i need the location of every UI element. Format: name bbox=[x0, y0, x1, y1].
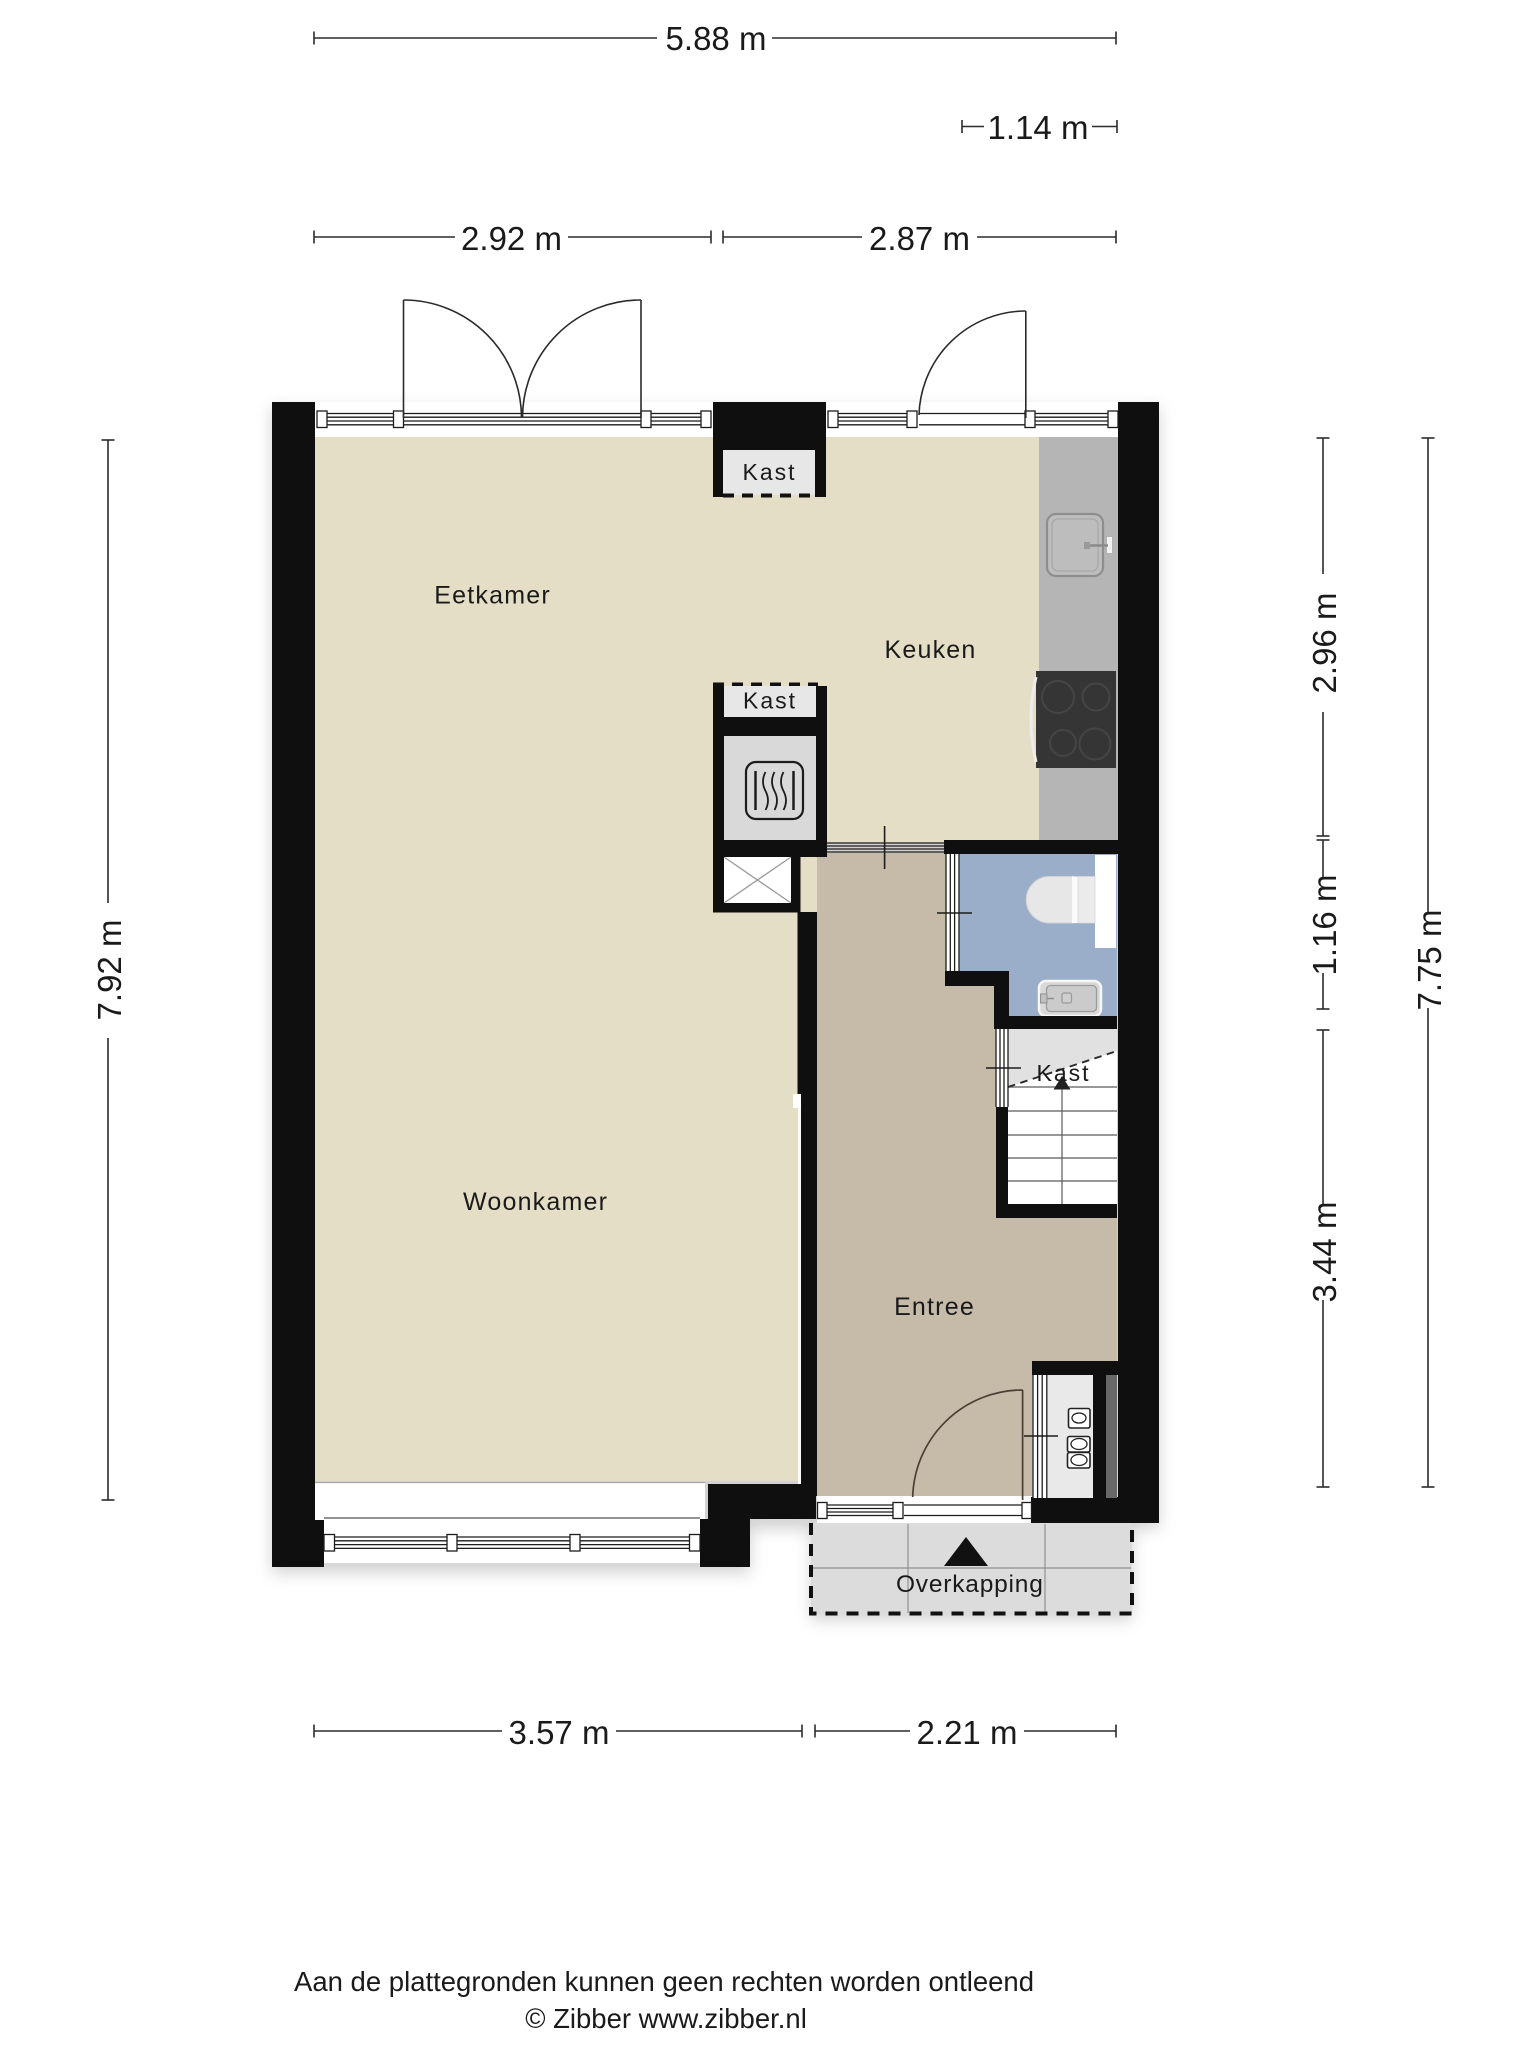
svg-text:Overkapping: Overkapping bbox=[896, 1571, 1044, 1598]
svg-text:3.57 m: 3.57 m bbox=[509, 1714, 610, 1751]
svg-text:Aan de plattegronden kunnen ge: Aan de plattegronden kunnen geen rechten… bbox=[294, 1966, 1034, 1997]
svg-text:5.88 m: 5.88 m bbox=[666, 20, 767, 57]
svg-text:Keuken: Keuken bbox=[885, 636, 977, 664]
svg-text:2.96 m: 2.96 m bbox=[1306, 593, 1343, 694]
svg-text:1.14 m: 1.14 m bbox=[988, 109, 1089, 146]
svg-text:Eetkamer: Eetkamer bbox=[434, 582, 551, 610]
svg-text:7.92 m: 7.92 m bbox=[91, 920, 128, 1021]
svg-text:Kast: Kast bbox=[742, 459, 796, 485]
svg-text:2.87 m: 2.87 m bbox=[869, 220, 970, 257]
svg-text:1.16 m: 1.16 m bbox=[1306, 875, 1343, 976]
svg-text:Kast: Kast bbox=[1036, 1060, 1090, 1086]
svg-text:2.92 m: 2.92 m bbox=[461, 220, 562, 257]
svg-text:© Zibber www.zibber.nl: © Zibber www.zibber.nl bbox=[525, 2003, 807, 2034]
svg-text:Woonkamer: Woonkamer bbox=[463, 1188, 608, 1216]
svg-text:3.44 m: 3.44 m bbox=[1306, 1202, 1343, 1303]
svg-text:Kast: Kast bbox=[743, 688, 797, 714]
svg-text:2.21 m: 2.21 m bbox=[917, 1714, 1018, 1751]
svg-text:Entree: Entree bbox=[894, 1293, 975, 1321]
svg-text:7.75 m: 7.75 m bbox=[1411, 910, 1448, 1011]
